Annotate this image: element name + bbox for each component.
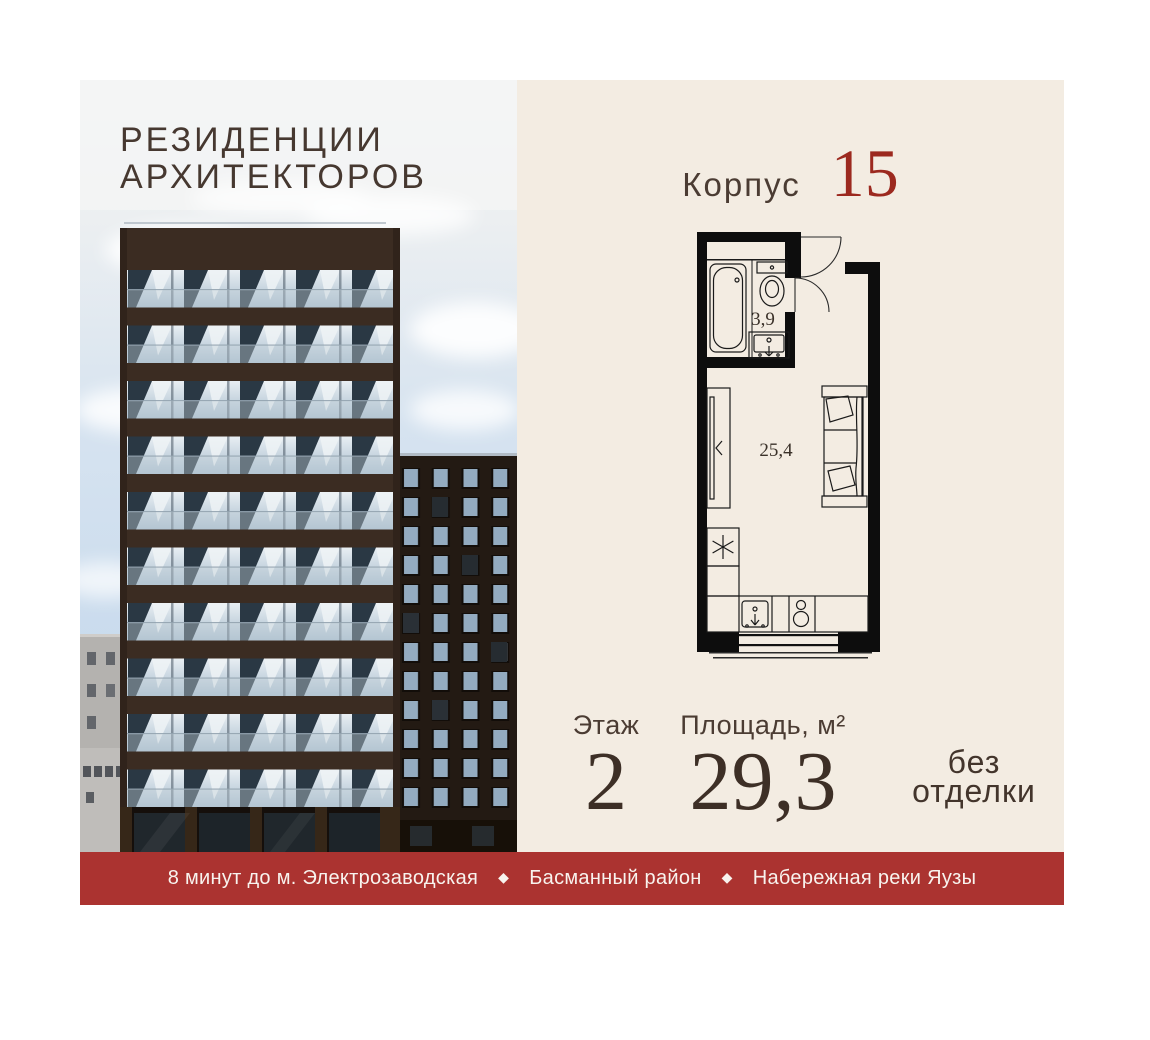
bathroom-sink-icon: [749, 332, 789, 358]
room-area-label: 25,4: [759, 440, 793, 461]
bathroom-door-arc: [795, 278, 829, 312]
side-building: [398, 453, 517, 852]
finishing-line2: отделки: [867, 777, 1081, 806]
duct-shaft: [707, 259, 785, 261]
wardrobe-icon: [707, 388, 730, 508]
building-label: Корпус: [682, 166, 800, 204]
floor-plan: 3,9 25,4: [697, 228, 885, 660]
project-title-line2: АРХИТЕКТОРОВ: [120, 159, 427, 196]
banner-item-metro: 8 минут до м. Электрозаводская: [168, 867, 478, 890]
project-title: РЕЗИДЕНЦИИ АРХИТЕКТОРОВ: [120, 122, 427, 196]
main-tower: [120, 222, 400, 852]
area-stat: Площадь, м² 29,3: [673, 710, 853, 821]
location-banner: 8 минут до м. Электрозаводская ◆ Басманн…: [80, 852, 1064, 905]
bathtub-icon: [710, 264, 746, 352]
stove-icon: [794, 601, 809, 627]
finishing-status: без отделки: [867, 748, 1081, 806]
info-panel: Корпус 15: [517, 80, 1064, 852]
kitchen-counter: [707, 566, 868, 632]
building-header: Корпус 15: [517, 134, 1064, 213]
bathroom-area-label: 3,9: [751, 309, 775, 330]
building-photo: РЕЗИДЕНЦИИ АРХИТЕКТОРОВ: [80, 80, 517, 852]
washing-machine-icon: [707, 528, 739, 566]
diamond-separator-icon: ◆: [498, 869, 509, 886]
ground-floor: [120, 807, 400, 852]
floor-value: 2: [543, 743, 669, 821]
area-value: 29,3: [673, 743, 853, 821]
diamond-separator-icon: ◆: [722, 869, 733, 886]
toilet-icon: [757, 262, 787, 306]
sofa-icon: [822, 386, 867, 507]
banner-item-district: Басманный район: [529, 867, 701, 890]
listing-card: РЕЗИДЕНЦИИ АРХИТЕКТОРОВ Корпус 15: [80, 80, 1064, 905]
entry-door-arc: [801, 237, 841, 277]
background-building: [80, 634, 126, 852]
floor-stat: Этаж 2: [543, 710, 669, 821]
kitchen-sink-icon: [742, 601, 768, 627]
banner-item-embankment: Набережная реки Яузы: [753, 867, 977, 890]
building-number: 15: [831, 134, 899, 213]
project-title-line1: РЕЗИДЕНЦИИ: [120, 122, 427, 159]
